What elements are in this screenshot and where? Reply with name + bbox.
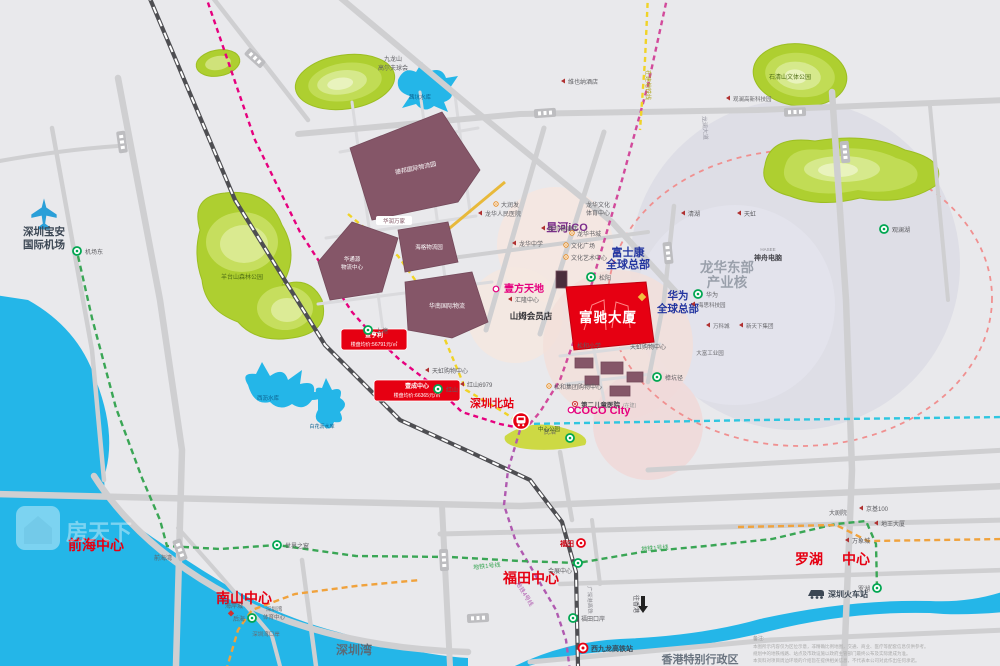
- label-to-hk: 往香港: [632, 595, 640, 613]
- poi-label-sams: 山姆会员店: [510, 311, 553, 321]
- poi-label: 华通源: [344, 255, 361, 263]
- poi-label: 前海湾: [154, 554, 172, 562]
- poi-label: 地王大厦: [881, 520, 905, 528]
- poi-label: 万象城: [852, 537, 870, 545]
- poi-label: 体育中心: [263, 613, 286, 621]
- price-tag-price: 楼盘均价:66365元/㎡: [394, 392, 441, 399]
- poi-label: 维也纳酒店: [568, 78, 598, 86]
- poi-label-szn: 深圳北站: [470, 396, 514, 410]
- disclaimer-title: 备注:: [753, 635, 764, 642]
- station-label: 后海: [233, 615, 245, 623]
- station-marker: [273, 541, 281, 549]
- station-marker: [873, 584, 881, 592]
- poi-label: 华南国际物流: [429, 302, 465, 310]
- poi-label: 海格物流园: [415, 243, 443, 251]
- station-marker-red: [579, 644, 588, 653]
- station-marker: [248, 614, 256, 622]
- poi-label-coco: COCO City: [574, 405, 632, 417]
- station-label: 樟坑径: [665, 374, 683, 382]
- poi-label: 天虹购物中心: [432, 367, 468, 375]
- price-tag-1: 金亨利 楼盘均价:56791元/㎡: [341, 329, 407, 350]
- disclaimer-line: 本图所示内容仅为区位示意，非精确比例地图，交通、商业、医疗等配套信息仅供参考。: [753, 643, 929, 650]
- price-tag-price: 楼盘均价:56791元/㎡: [351, 341, 398, 348]
- poi-label: 石清山文体公园: [769, 73, 811, 81]
- poi-dot-icon: [564, 255, 568, 259]
- station-label-wkl: 西九龙高铁站: [591, 644, 633, 653]
- metro-label: 在建地铁线: [644, 70, 652, 100]
- station-label-futian: 福田: [559, 539, 574, 548]
- station-marker: [653, 373, 661, 381]
- poi-label: 松和小学: [577, 342, 601, 350]
- poi-label-longhua-east-1: 龙华东部: [699, 259, 754, 275]
- poi-label: 高尔夫球会: [378, 64, 408, 72]
- disclaimer-line: 规划中的地铁线路、站点及市政设施以政府主管部门最终公布及实际建成为准。: [753, 650, 911, 657]
- poi-label: 文化艺术中心: [571, 254, 607, 262]
- poi-label: 神舟电脑: [754, 253, 782, 262]
- station-marker-red: [577, 539, 585, 547]
- station-marker: [574, 559, 582, 567]
- poi-label-yifang: 壹方天地: [504, 282, 544, 295]
- district-luohu-2: 中心: [842, 551, 870, 567]
- poi-label: 新天下集团: [746, 322, 774, 330]
- poi-label: 物流中心: [341, 263, 364, 271]
- poi-dot-icon: [570, 231, 574, 235]
- poi-label-railway: 深圳火车站: [828, 589, 868, 599]
- station-label: 观澜湖: [892, 226, 910, 234]
- station-label: 会展中心: [548, 567, 572, 575]
- poi-label: 京基100: [866, 505, 889, 513]
- poi-label-foxconn-1: 富士康: [612, 245, 646, 259]
- poi-label: 深圳湾口岸: [252, 630, 280, 638]
- poi-label: 汇隆中心: [515, 296, 539, 304]
- property-name: 富驰大厦: [579, 309, 637, 325]
- label-hongkong: 香港特别行政区: [661, 652, 739, 666]
- label-shenzhen-bay: 深圳湾: [336, 642, 372, 657]
- station-label: 上塘: [376, 327, 388, 335]
- poi-label: 华润万家: [383, 217, 406, 225]
- station-label: 红山: [446, 386, 458, 394]
- station-marker: [434, 385, 442, 393]
- poi-ring-icon: [493, 286, 499, 292]
- location-map: 富驰大厦 金亨利 楼盘均价:56791元/㎡ 壹成中心 楼盘均价:66365元/…: [0, 0, 1000, 666]
- price-tag-name: 壹成中心: [405, 382, 429, 390]
- station-marker: [694, 290, 702, 298]
- poi-label: 松和集团购物中心: [554, 383, 602, 391]
- poi-label: 大富工业园: [696, 349, 724, 357]
- station-label: 福田口岸: [581, 615, 605, 623]
- airport-label-2: 国际机场: [23, 238, 65, 251]
- station-marker: [566, 434, 574, 442]
- poi-label-foxconn-2: 全球总部: [605, 257, 650, 271]
- poi-label-longhua-east-2: 产业核: [707, 274, 748, 290]
- poi-label: 大剧院: [829, 509, 847, 517]
- airport-label-1: 深圳宝安: [23, 225, 65, 238]
- watermark-text: 房天下: [66, 520, 132, 545]
- poi-label: 红山6979: [467, 381, 493, 389]
- north-station-icon: [513, 413, 530, 430]
- poi-label: 体育中心: [586, 209, 610, 217]
- poi-label: 龙华人民医院: [485, 210, 521, 218]
- poi-label: 西沥水库: [257, 394, 280, 402]
- poi-label: 龙华中学: [519, 240, 543, 248]
- district-luohu-1: 罗湖: [795, 551, 823, 567]
- station-label: 世界之窗: [285, 542, 309, 550]
- poi-label: 文化广场: [571, 242, 595, 250]
- station-label: 华为: [706, 291, 718, 299]
- poi-label: HASEE: [760, 247, 775, 252]
- station-marker: [587, 273, 595, 281]
- disclaimer-line: 本资料对项目周边环境的介绍旨在提供相关信息，不代表本公司对此作出任何承诺。: [753, 657, 920, 664]
- poi-dot-icon: [564, 243, 568, 247]
- station-marker: [73, 247, 81, 255]
- poi-label: 海思科技园: [698, 301, 726, 309]
- poi-label: 海岸城: [225, 602, 243, 610]
- station-marker: [569, 614, 577, 622]
- property-block-fuchi: 富驰大厦: [566, 282, 654, 350]
- huide-tower: [556, 271, 567, 288]
- poi-label: 中心公园: [538, 425, 561, 433]
- poi-label: 茜坑水库: [409, 93, 432, 101]
- poi-label: 龙华文化: [586, 201, 610, 209]
- crvanguard-chip: 华润万家: [376, 216, 412, 225]
- poi-label: 龙华书城: [577, 230, 601, 238]
- poi-label: 清湖: [688, 210, 700, 218]
- station-label: 松阳: [599, 274, 611, 282]
- poi-label: 万科城: [713, 322, 730, 330]
- poi-label: 天虹购物中心: [630, 343, 666, 351]
- poi-label: 羊台山森林公园: [221, 273, 263, 281]
- poi-dot-icon: [547, 384, 551, 388]
- poi-label: 九龙山: [384, 55, 402, 63]
- poi-label: 白花沥水库: [309, 423, 334, 430]
- poi-label: 深圳湾: [266, 605, 283, 613]
- poi-label: 天虹: [744, 210, 756, 218]
- station-marker: [880, 225, 888, 233]
- poi-dot-icon: [494, 202, 498, 206]
- poi-label: 观澜高新科技园: [733, 95, 772, 103]
- station-label: 机场东: [85, 248, 103, 256]
- station-marker: [364, 326, 372, 334]
- poi-label: 大润发: [501, 201, 519, 209]
- poi-label-huawei-1: 华为: [668, 289, 689, 302]
